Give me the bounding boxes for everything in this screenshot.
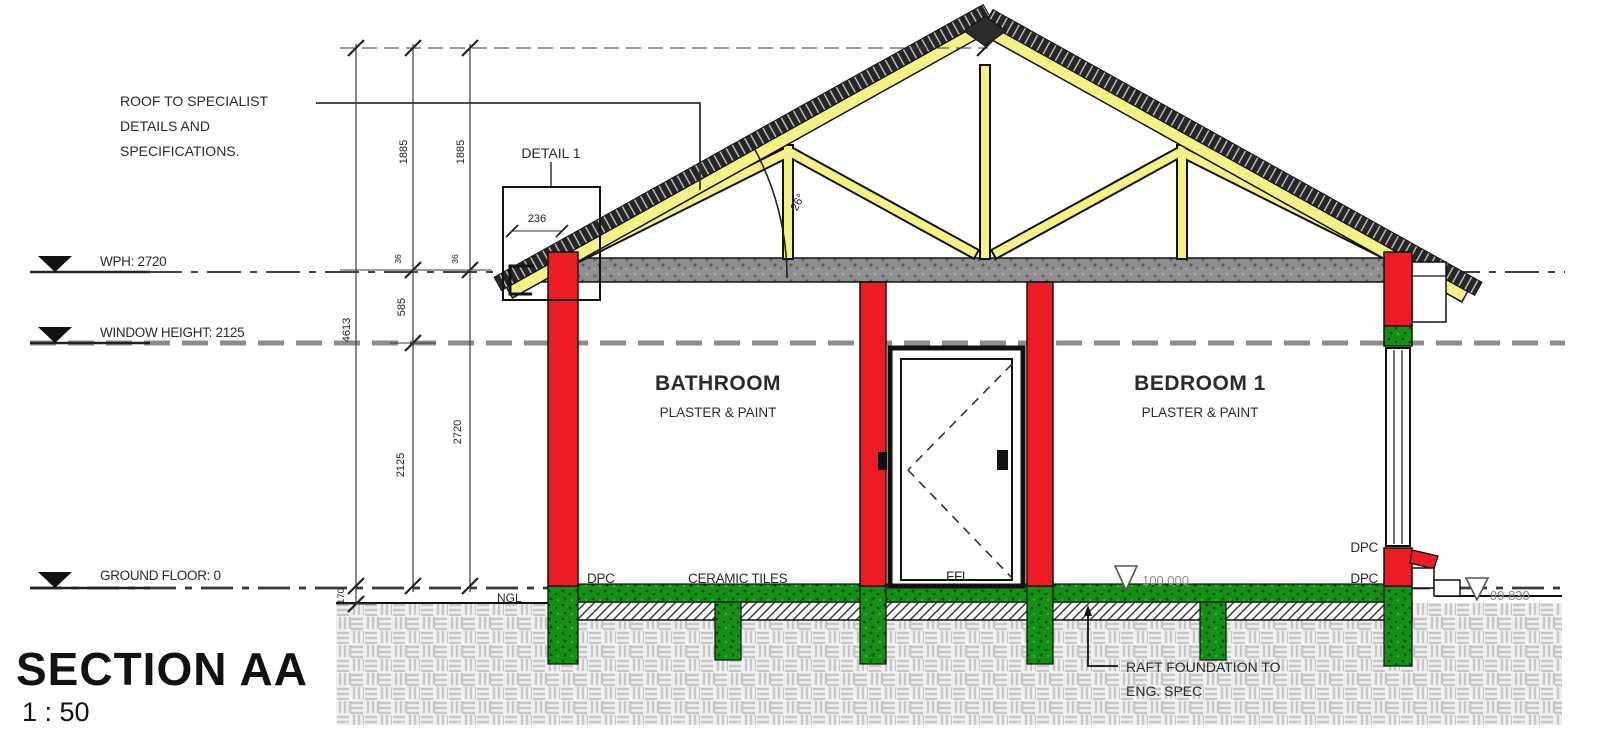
section-title: SECTION AA — [16, 644, 308, 695]
window-height-label: WINDOW HEIGHT: 2125 — [100, 325, 244, 340]
dpc-left-label: DPC — [587, 571, 615, 586]
datum-lines — [30, 272, 1565, 588]
ceiling-slab — [534, 258, 1436, 282]
roof-note-leader — [316, 103, 700, 190]
detail-dim: 236 — [528, 213, 546, 225]
stub-right-wall — [1384, 586, 1412, 666]
dim-plate-c: 36 — [450, 254, 460, 264]
ground-level-icon — [38, 572, 72, 588]
wall-right-lintel — [1384, 326, 1412, 346]
section-scale: 1 : 50 — [22, 697, 308, 728]
detail-label: DETAIL 1 — [521, 145, 580, 161]
dim-verticals — [356, 44, 470, 604]
bathroom-name: BATHROOM — [655, 372, 781, 395]
section-drawing: 1885 1885 4613 585 2125 2720 36 36 170 W… — [0, 0, 1600, 756]
dim-roof-right: 1885 — [455, 140, 467, 164]
title-block: SECTION AA 1 : 50 — [16, 644, 308, 728]
roof-note-line2: DETAILS AND — [120, 118, 210, 134]
level-markers: WPH: 2720 WINDOW HEIGHT: 2125 GROUND FLO… — [30, 254, 244, 588]
dpc-right-bottom-label: DPC — [1350, 571, 1378, 586]
overflow-spout — [1410, 550, 1438, 569]
ffl-label: FFL — [946, 569, 970, 584]
surface-bed-hatch — [570, 602, 1412, 620]
bedroom-name: BEDROOM 1 — [1134, 372, 1266, 395]
ffl-level-value: 100 000 — [1142, 573, 1189, 588]
dim-tick-extensions — [336, 270, 492, 604]
wall-right-bottom — [1384, 548, 1412, 586]
roof-note: ROOF TO SPECIALIST DETAILS AND SPECIFICA… — [120, 93, 700, 190]
door-handle — [997, 450, 1008, 470]
door-hinge-block — [878, 452, 887, 470]
stub-mid-left — [715, 602, 741, 660]
ground-floor-label: GROUND FLOOR: 0 — [100, 568, 221, 583]
stub-mid-right — [1200, 602, 1226, 660]
door — [878, 348, 1023, 586]
raft-note-line2: ENG. SPEC — [1126, 683, 1202, 699]
wph-label: WPH: 2720 — [100, 254, 166, 269]
dim-roof-left: 1885 — [398, 140, 410, 164]
wall-left — [548, 252, 578, 586]
window-right — [1386, 348, 1410, 546]
stub-left-wall — [548, 586, 578, 664]
wph-level-icon — [38, 256, 72, 272]
ceramic-tiles-label: CERAMIC TILES — [688, 571, 788, 586]
raft-note-line1: RAFT FOUNDATION TO — [1126, 659, 1281, 675]
bathroom-finish: PLASTER & PAINT — [660, 405, 777, 420]
dim-window-height: 2125 — [395, 453, 407, 477]
window-frame — [1386, 348, 1410, 546]
dim-wall-height: 2720 — [452, 420, 464, 444]
dim-ceiling-zone: 585 — [396, 298, 408, 316]
wall-interior-2 — [1027, 282, 1053, 586]
external-step-right — [1412, 568, 1460, 596]
step-upper — [1412, 568, 1434, 588]
ngl-level-value: 99 830 — [1490, 588, 1530, 603]
wall-interior-1 — [860, 282, 886, 586]
ground-stipple — [336, 603, 1562, 725]
stub-wall1 — [860, 586, 886, 664]
roof-note-line1: ROOF TO SPECIALIST — [120, 93, 269, 109]
roof-note-line3: SPECIFICATIONS. — [120, 143, 240, 159]
stub-wall2 — [1027, 586, 1053, 664]
dim-floor-drop: 170 — [336, 588, 347, 604]
wall-right-top — [1384, 252, 1412, 326]
step-lower — [1434, 580, 1460, 596]
bedroom-finish: PLASTER & PAINT — [1142, 405, 1259, 420]
dpc-right-top-label: DPC — [1350, 540, 1378, 555]
ngl-label: NGL — [497, 591, 522, 605]
dim-total: 4613 — [341, 318, 353, 342]
dim-plate-b: 36 — [393, 254, 403, 264]
fascia-right — [1412, 262, 1446, 322]
